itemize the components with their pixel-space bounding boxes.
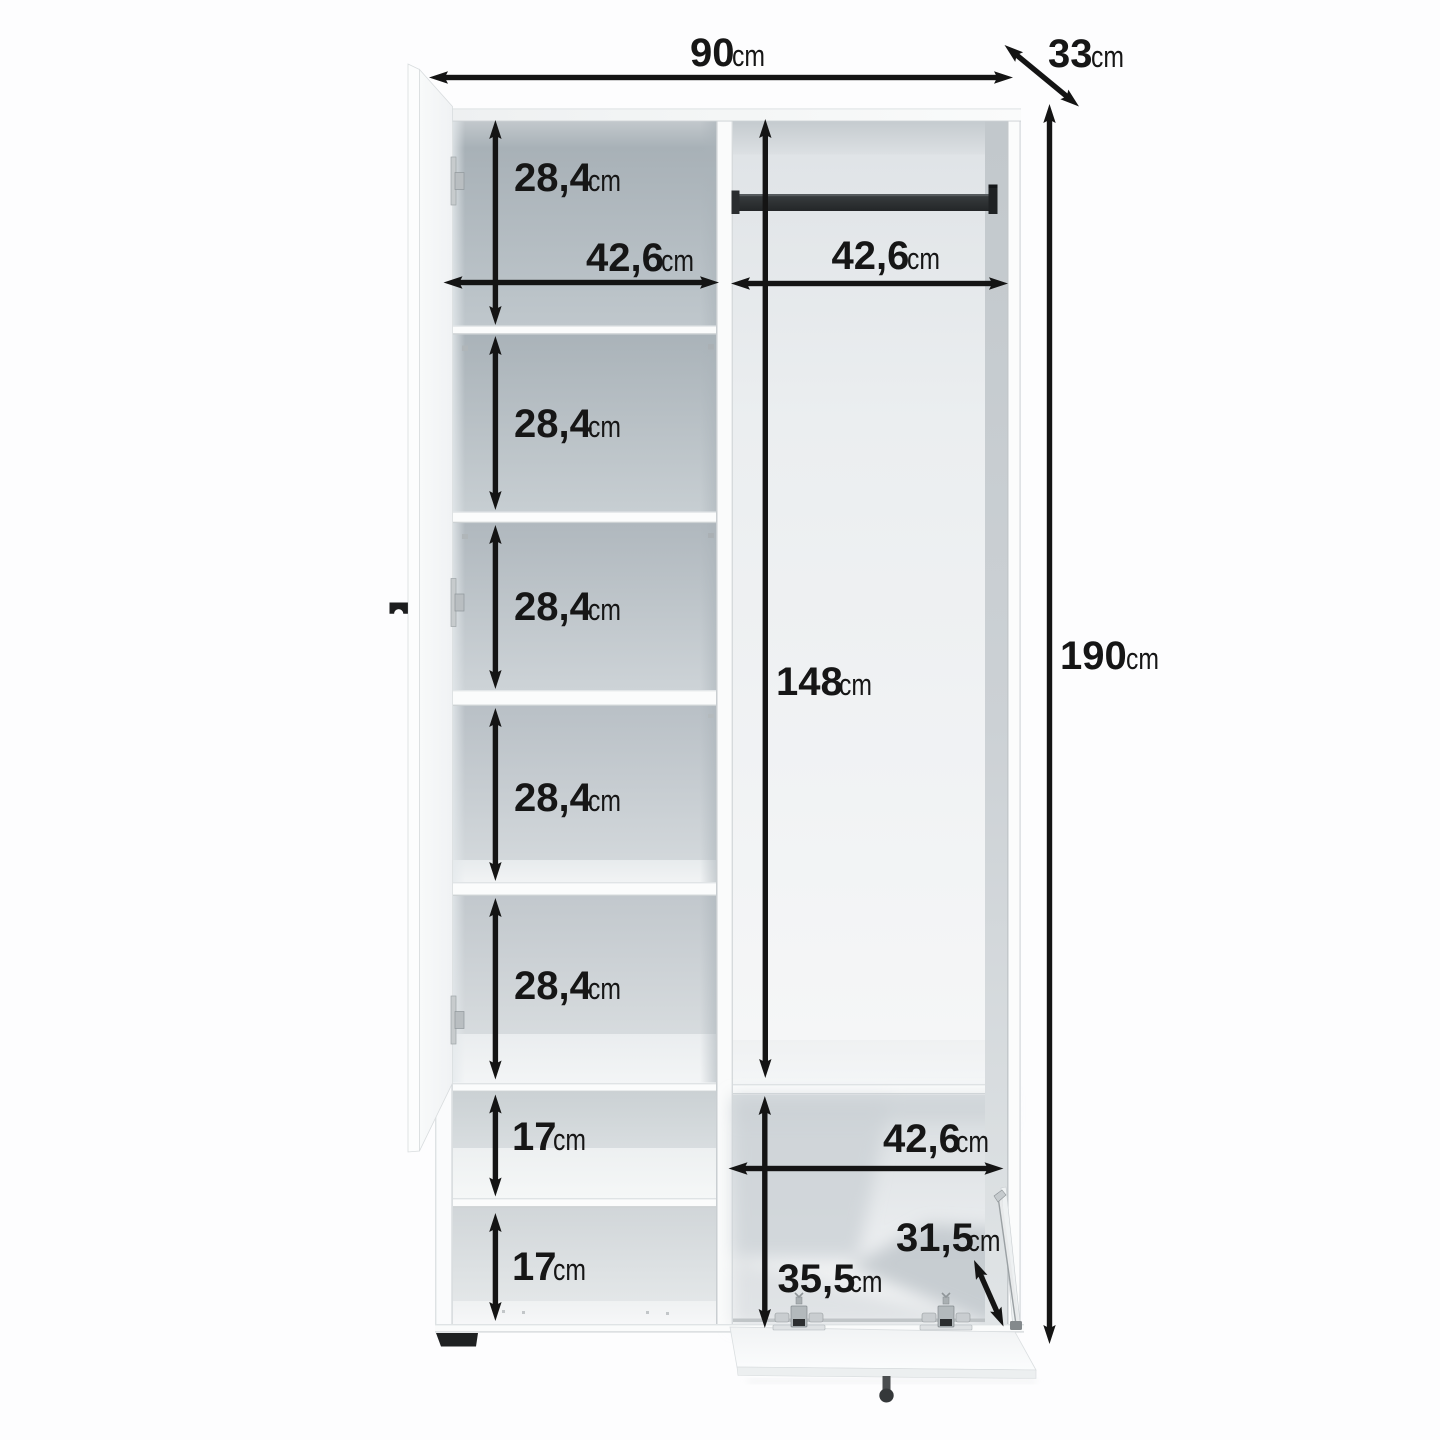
svg-text:cm: cm (553, 1252, 586, 1287)
svg-text:90: 90 (690, 31, 735, 75)
svg-text:33: 33 (1048, 32, 1093, 76)
svg-text:cm: cm (588, 783, 621, 818)
svg-text:17: 17 (512, 1245, 557, 1289)
svg-text:148: 148 (776, 660, 843, 704)
svg-text:cm: cm (968, 1223, 1001, 1258)
svg-text:cm: cm (1091, 39, 1124, 74)
svg-text:28,4: 28,4 (514, 776, 593, 820)
svg-text:cm: cm (850, 1264, 883, 1299)
svg-text:28,4: 28,4 (514, 585, 593, 629)
svg-text:31,5: 31,5 (896, 1216, 974, 1260)
svg-text:42,6: 42,6 (832, 234, 910, 278)
svg-text:28,4: 28,4 (514, 964, 593, 1008)
svg-text:42,6: 42,6 (883, 1117, 961, 1161)
svg-text:cm: cm (553, 1122, 586, 1157)
svg-text:28,4: 28,4 (514, 402, 593, 446)
svg-text:42,6: 42,6 (586, 236, 664, 280)
svg-text:cm: cm (588, 163, 621, 198)
svg-text:35,5: 35,5 (778, 1257, 856, 1301)
svg-text:cm: cm (907, 241, 940, 276)
svg-text:cm: cm (956, 1124, 989, 1159)
svg-text:cm: cm (1126, 641, 1159, 676)
svg-text:190: 190 (1060, 634, 1127, 678)
svg-text:cm: cm (732, 38, 765, 73)
svg-text:cm: cm (661, 243, 694, 278)
svg-text:cm: cm (588, 409, 621, 444)
svg-text:cm: cm (588, 592, 621, 627)
svg-text:28,4: 28,4 (514, 156, 593, 200)
svg-text:cm: cm (588, 971, 621, 1006)
svg-text:17: 17 (512, 1115, 557, 1159)
svg-text:cm: cm (839, 667, 872, 702)
